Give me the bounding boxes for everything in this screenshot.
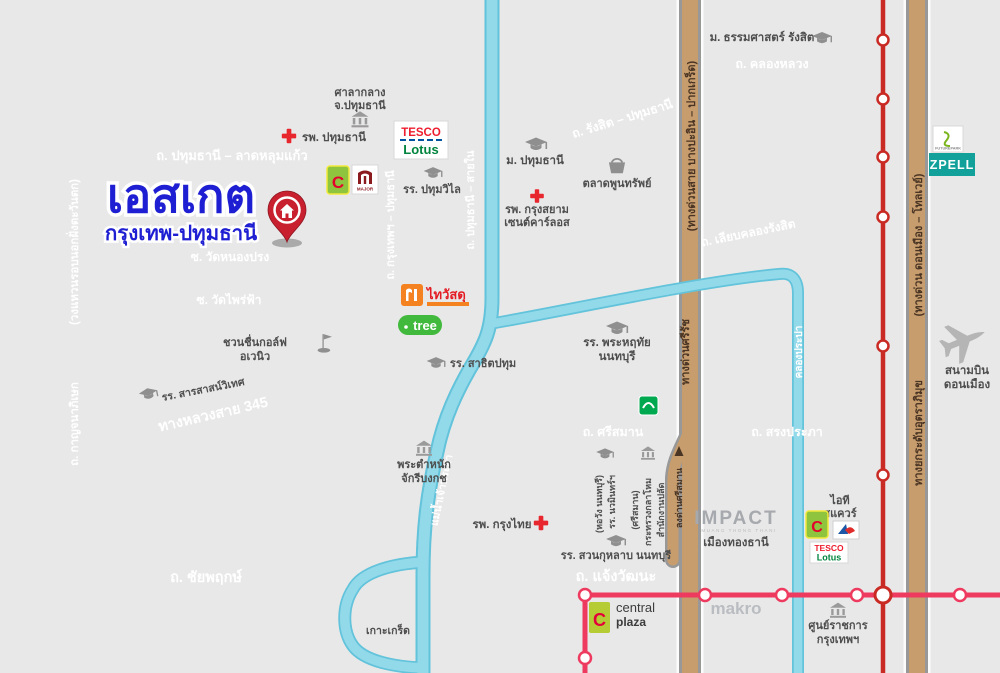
- road-label-wat-nongprong: ซ. วัดหนองปรง: [191, 250, 270, 264]
- project-title: เอสเกต: [107, 169, 255, 222]
- location-map: ถ. ปทุมธานี – ลาดหลุมแก้ว ซ. วัดหนองปรง …: [0, 0, 1000, 673]
- lotus-wordmark: Lotus: [817, 553, 842, 563]
- thai-watsadu-wordmark: ไทวัสดุ: [425, 286, 466, 303]
- road-label-chaengwattana: ถ. แจ้งวัฒนะ: [576, 568, 657, 585]
- city-hall-label: ศาลากลาง: [334, 87, 385, 99]
- defense-office-label: สำนักงานปลัด: [656, 482, 666, 537]
- central-wordmark: central: [616, 600, 655, 615]
- tesco-wordmark: TESCO: [401, 127, 441, 139]
- tesco-wordmark: TESCO: [814, 543, 844, 553]
- don-mueang-airport-label: สนามบิน: [945, 364, 989, 377]
- thai-watsadu-logo: ไทวัสดุ: [401, 284, 469, 306]
- big-c-letter: C: [332, 173, 344, 192]
- map-canvas: ถ. ปทุมธานี – ลาดหลุมแก้ว ซ. วัดหนองปรง …: [0, 0, 1000, 673]
- plaza-wordmark: plaza: [616, 615, 646, 629]
- big-c-letter: C: [811, 519, 823, 536]
- phra-tamnak-label: พระตำหนัก: [397, 458, 451, 471]
- road-label-bangkok-pathum: ถ. กรุงเทพฯ – ปทุมธานี: [384, 170, 398, 280]
- impact-logo-subtext: MUANG THONG THANI: [701, 528, 776, 533]
- expressway-label-sirat: ทางด่วนศรีรัช: [679, 319, 692, 385]
- expressway-label-uttaraphimuk: ทางยกระดับอุตราภิมุข: [912, 380, 926, 486]
- map-background: [0, 0, 1000, 673]
- phraharuthai-school-label: รร. พระหฤทัย: [583, 336, 651, 349]
- future-park-wordmark: FUTUREPARK: [935, 147, 961, 151]
- canal-label-khlong-prapa: คลองประปา: [793, 326, 805, 379]
- expressway-label-bang-pa-in: (ทางด่วนสาย บางปะอิน – ปากเกร็ด): [684, 60, 698, 231]
- big-c-logo: C: [327, 166, 349, 194]
- pathum-university-label: ม. ปทุมธานี: [506, 154, 564, 168]
- satit-pathum-school-label: รร. สาธิตปทุม: [450, 357, 516, 371]
- road-label-khlong-luang: ถ. คลองหลวง: [735, 57, 808, 71]
- nawamin-school-label: (หอวัง นนทบุรี): [594, 475, 605, 533]
- it-square-logo: [833, 521, 859, 539]
- tree-logo: tree: [398, 315, 442, 335]
- defense-office-label: กระทรวงกลาโหม: [642, 478, 653, 546]
- chuanchuen-golf-label: อเวนิว: [240, 350, 270, 363]
- it-square-label: ไอที: [828, 493, 849, 507]
- tree-wordmark: tree: [413, 318, 437, 333]
- road-label-wat-phraifa: ซ. วัดไพร่ฟ้า: [197, 292, 262, 307]
- road-label-pathum-latlumkaeo: ถ. ปทุมธานี – ลาดหลุมแก้ว: [156, 148, 307, 164]
- tesco-lotus-logo: TESCO Lotus: [394, 121, 448, 159]
- krungsiam-hospital-label: เซนต์คาร์ลอส: [504, 216, 570, 229]
- makro-logo: makro: [710, 599, 761, 618]
- major-wordmark: MAJOR: [357, 187, 374, 192]
- interchange-station: [875, 587, 891, 603]
- pathumwilai-school-label: รร. ปทุมวิไล: [403, 182, 461, 197]
- nawamin-school-label: รร. นวมินทร์ฯ: [606, 475, 617, 529]
- zpell-logo: ZPELL: [929, 153, 975, 176]
- poonsap-market-label: ตลาดพูนทรัพย์: [583, 177, 652, 191]
- chuanchuen-golf-label: ชวนชื่นกอล์ฟ: [223, 334, 287, 349]
- major-cineplex-logo: MAJOR: [352, 165, 378, 194]
- future-park-logo: FUTUREPARK: [933, 126, 963, 152]
- phraharuthai-school-label: นนทบุรี: [599, 350, 637, 364]
- road-label-srisaman: ถ. ศรีสมาน: [583, 425, 644, 439]
- road-label-chaiyaphruek: ถ. ชัยพฤกษ์: [170, 568, 242, 586]
- road-label-songprapha: ถ. สรงประภา: [751, 425, 823, 439]
- pathum-hospital-label: รพ. ปทุมธานี: [302, 131, 366, 145]
- central-c-letter: C: [593, 610, 606, 630]
- expressway-label-don-mueang-tollway: (ทางด่วน ดอนเมือง – โทลเวย์): [911, 173, 925, 316]
- tesco-lotus-logo-small: TESCO Lotus: [810, 542, 848, 563]
- zpell-wordmark: ZPELL: [930, 158, 975, 172]
- robinson-srisaman-logo: [639, 396, 658, 415]
- island-label-koh-kret: เกาะเกร็ด: [366, 623, 410, 637]
- lotus-wordmark: Lotus: [403, 142, 438, 157]
- impact-logo: IMPACT: [694, 508, 777, 529]
- project-subtitle: กรุงเทพ-ปทุมธานี: [105, 222, 257, 246]
- road-label-pathum-sainai: ถ. ปทุมธานี – สายใน: [463, 150, 478, 250]
- defense-office-label: (ศรีสมาน): [630, 490, 640, 529]
- phra-tamnak-label: จักรีบงกช: [401, 472, 447, 485]
- government-complex-label: ศูนย์ราชการ: [808, 619, 867, 633]
- krungthai-hospital-label: รพ. กรุงไทย: [472, 517, 531, 532]
- government-complex-label: กรุงเทพฯ: [817, 634, 859, 647]
- thammasat-university-label: ม. ธรรมศาสตร์ รังสิต: [710, 30, 815, 44]
- road-label-kanchanaphisek: ถ. กาญจนาภิเษก: [68, 382, 81, 466]
- expressway-label-exit-srisaman: ลงด่านศรีสมาน: [674, 467, 684, 528]
- impact-muang-thong-thani-label: เมืองทองธานี: [703, 536, 769, 549]
- don-mueang-airport-label: ดอนเมือง: [944, 378, 991, 391]
- big-c-logo-it-square: C: [806, 511, 828, 538]
- city-hall-label: จ.ปทุมธานี: [334, 99, 386, 113]
- krungsiam-hospital-label: รพ. กรุงสยาม: [505, 204, 569, 217]
- central-plaza-logo: C central plaza: [589, 600, 655, 633]
- suankularb-school-label: รร. สวนกุหลาบ นนทบุรี: [561, 549, 671, 563]
